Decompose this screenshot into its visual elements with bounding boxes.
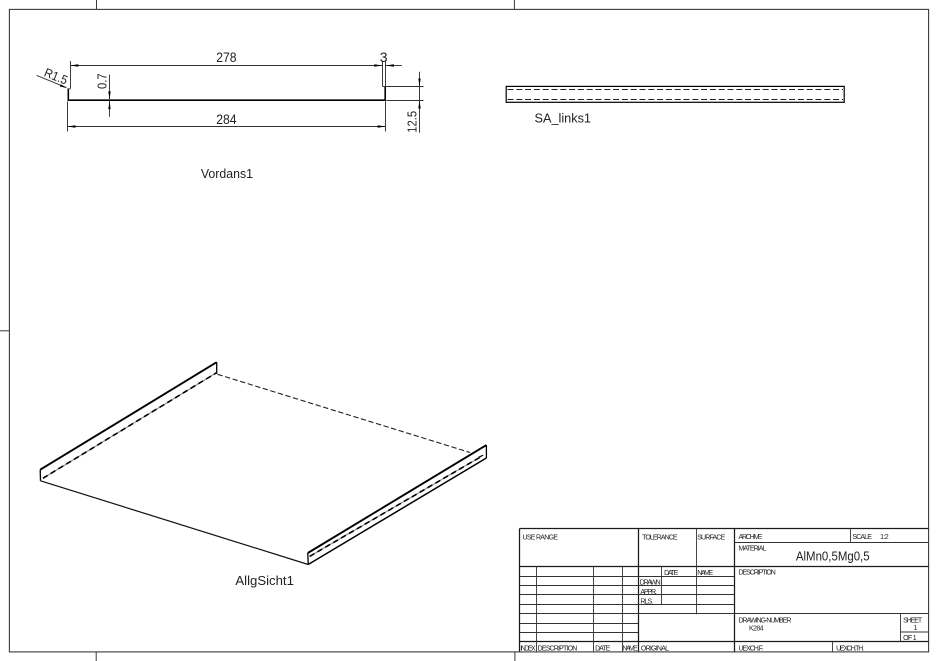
svg-text:R1.5: R1.5 [42, 66, 70, 88]
svg-text:278: 278 [216, 49, 236, 65]
svg-text:APPR.: APPR. [640, 589, 656, 596]
svg-text:DATE: DATE [595, 646, 611, 653]
svg-text:DESCRIPTION: DESCRIPTION [739, 570, 776, 577]
svg-text:AllgSicht1: AllgSicht1 [235, 573, 294, 588]
svg-text:MATERIAL: MATERIAL [739, 546, 767, 553]
svg-text:SHEET: SHEET [903, 617, 923, 624]
svg-text:ARCHIVE: ARCHIVE [739, 534, 763, 541]
svg-text:SURFACE: SURFACE [697, 534, 725, 541]
svg-text:TOLERANCE: TOLERANCE [642, 534, 678, 541]
svg-text:UEXCH.TH.: UEXCH.TH. [836, 646, 864, 653]
svg-text:1:2: 1:2 [880, 534, 889, 541]
svg-text:RLS.: RLS. [640, 598, 653, 605]
svg-text:DESCRIPTION: DESCRIPTION [538, 646, 578, 653]
svg-text:DATE: DATE [664, 570, 679, 577]
svg-text:OF 1: OF 1 [903, 635, 917, 642]
svg-text:UEXCH.F.: UEXCH.F. [739, 646, 764, 653]
svg-text:SA_links1: SA_links1 [535, 111, 592, 126]
svg-text:12.5: 12.5 [404, 111, 419, 133]
svg-text:284: 284 [216, 111, 236, 127]
svg-text:NAME: NAME [623, 646, 639, 653]
svg-text:K284: K284 [749, 625, 764, 632]
svg-text:AlMn0,5Mg0,5: AlMn0,5Mg0,5 [796, 550, 870, 564]
svg-text:NAME: NAME [697, 570, 713, 577]
svg-text:0.7: 0.7 [95, 73, 110, 89]
svg-text:SCALE: SCALE [852, 534, 872, 541]
svg-text:3: 3 [380, 49, 388, 65]
svg-text:ORIGINAL: ORIGINAL [641, 646, 669, 653]
svg-text:DRAWING-NUMBER: DRAWING-NUMBER [739, 618, 792, 625]
svg-text:USE RANGE: USE RANGE [523, 534, 559, 541]
svg-text:DRAWN: DRAWN [640, 580, 661, 587]
svg-text:INDEX: INDEX [520, 646, 536, 653]
svg-text:1: 1 [914, 625, 918, 632]
svg-text:Vordans1: Vordans1 [201, 166, 253, 181]
